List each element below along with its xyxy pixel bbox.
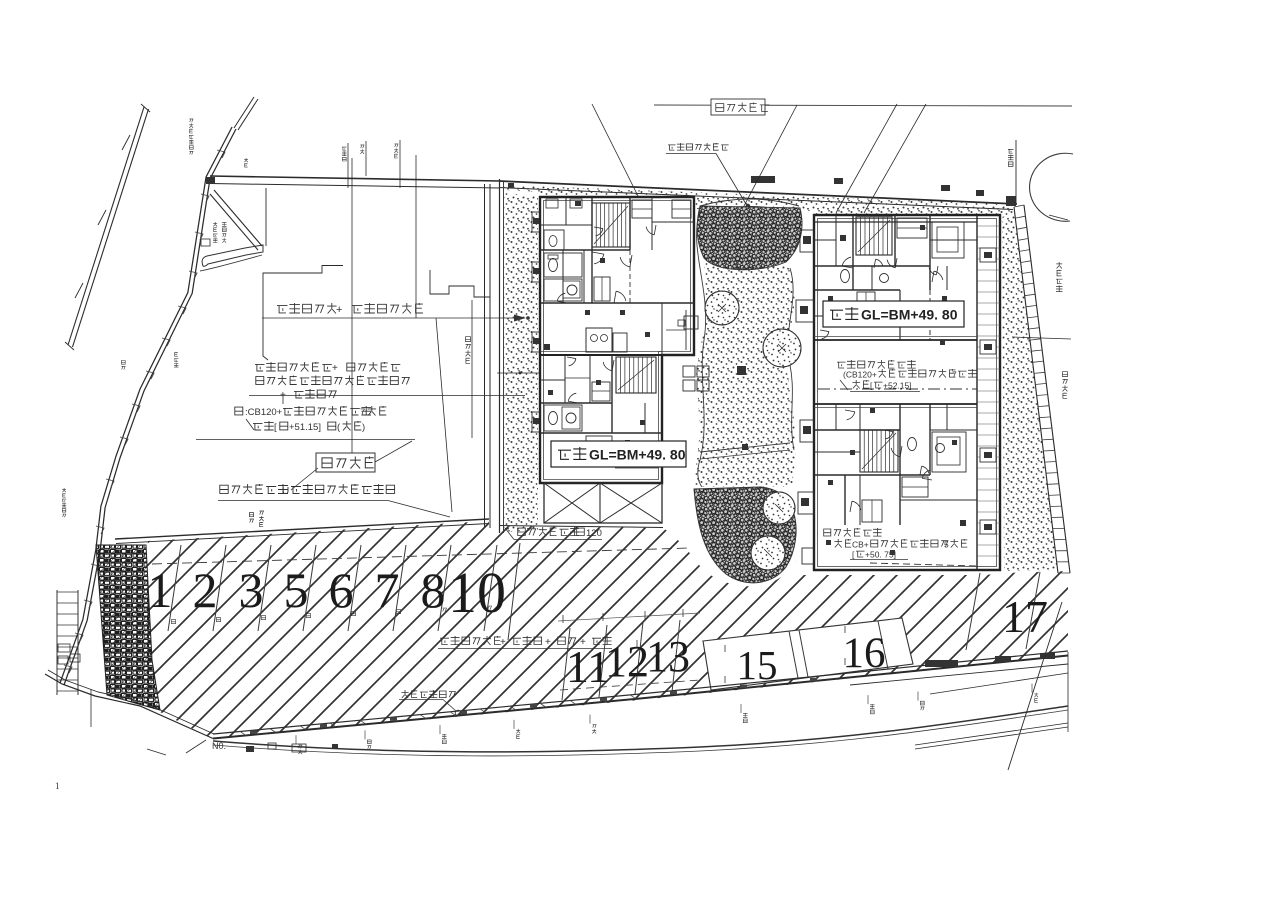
svg-text:15: 15 — [737, 642, 778, 688]
svg-text:6: 6 — [329, 562, 354, 618]
svg-text:120: 120 — [586, 528, 602, 539]
svg-text:CB+: CB+ — [852, 540, 869, 550]
svg-text:7: 7 — [952, 370, 957, 380]
svg-text:16: 16 — [843, 630, 886, 677]
svg-text:7: 7 — [375, 562, 400, 618]
svg-text:+: + — [545, 637, 551, 648]
svg-text:U: U — [282, 486, 289, 497]
svg-text:5: 5 — [284, 562, 309, 618]
svg-text:+: + — [500, 637, 506, 648]
svg-text:+52.15]: +52.15] — [883, 381, 912, 391]
svg-text:11: 11 — [566, 641, 610, 692]
svg-text::CB120+: :CB120+ — [245, 407, 283, 418]
svg-text:(CB120+: (CB120+ — [843, 370, 877, 380]
svg-text:GL=BM+49. 80: GL=BM+49. 80 — [861, 307, 958, 323]
svg-text:17: 17 — [1002, 591, 1048, 642]
svg-text:2: 2 — [193, 562, 218, 618]
svg-text:7: 7 — [360, 407, 365, 418]
svg-text:N0.: N0. — [212, 741, 226, 751]
svg-text:5: 5 — [944, 540, 949, 550]
svg-text:+51.15]: +51.15] — [289, 422, 321, 433]
svg-text:+50. 75]: +50. 75] — [865, 550, 896, 560]
svg-text:8: 8 — [421, 562, 446, 618]
svg-text:+: + — [336, 304, 342, 316]
svg-text:+: + — [332, 363, 338, 374]
svg-text:): ) — [362, 422, 365, 433]
svg-text:12: 12 — [605, 637, 649, 686]
svg-text:13: 13 — [646, 632, 690, 681]
svg-text:[: [ — [274, 422, 277, 433]
svg-text:GL=BM+49. 80: GL=BM+49. 80 — [589, 447, 686, 463]
svg-text:1: 1 — [148, 562, 173, 618]
svg-text:1: 1 — [55, 781, 60, 791]
svg-text:3: 3 — [239, 562, 264, 618]
svg-text:10: 10 — [448, 560, 506, 625]
